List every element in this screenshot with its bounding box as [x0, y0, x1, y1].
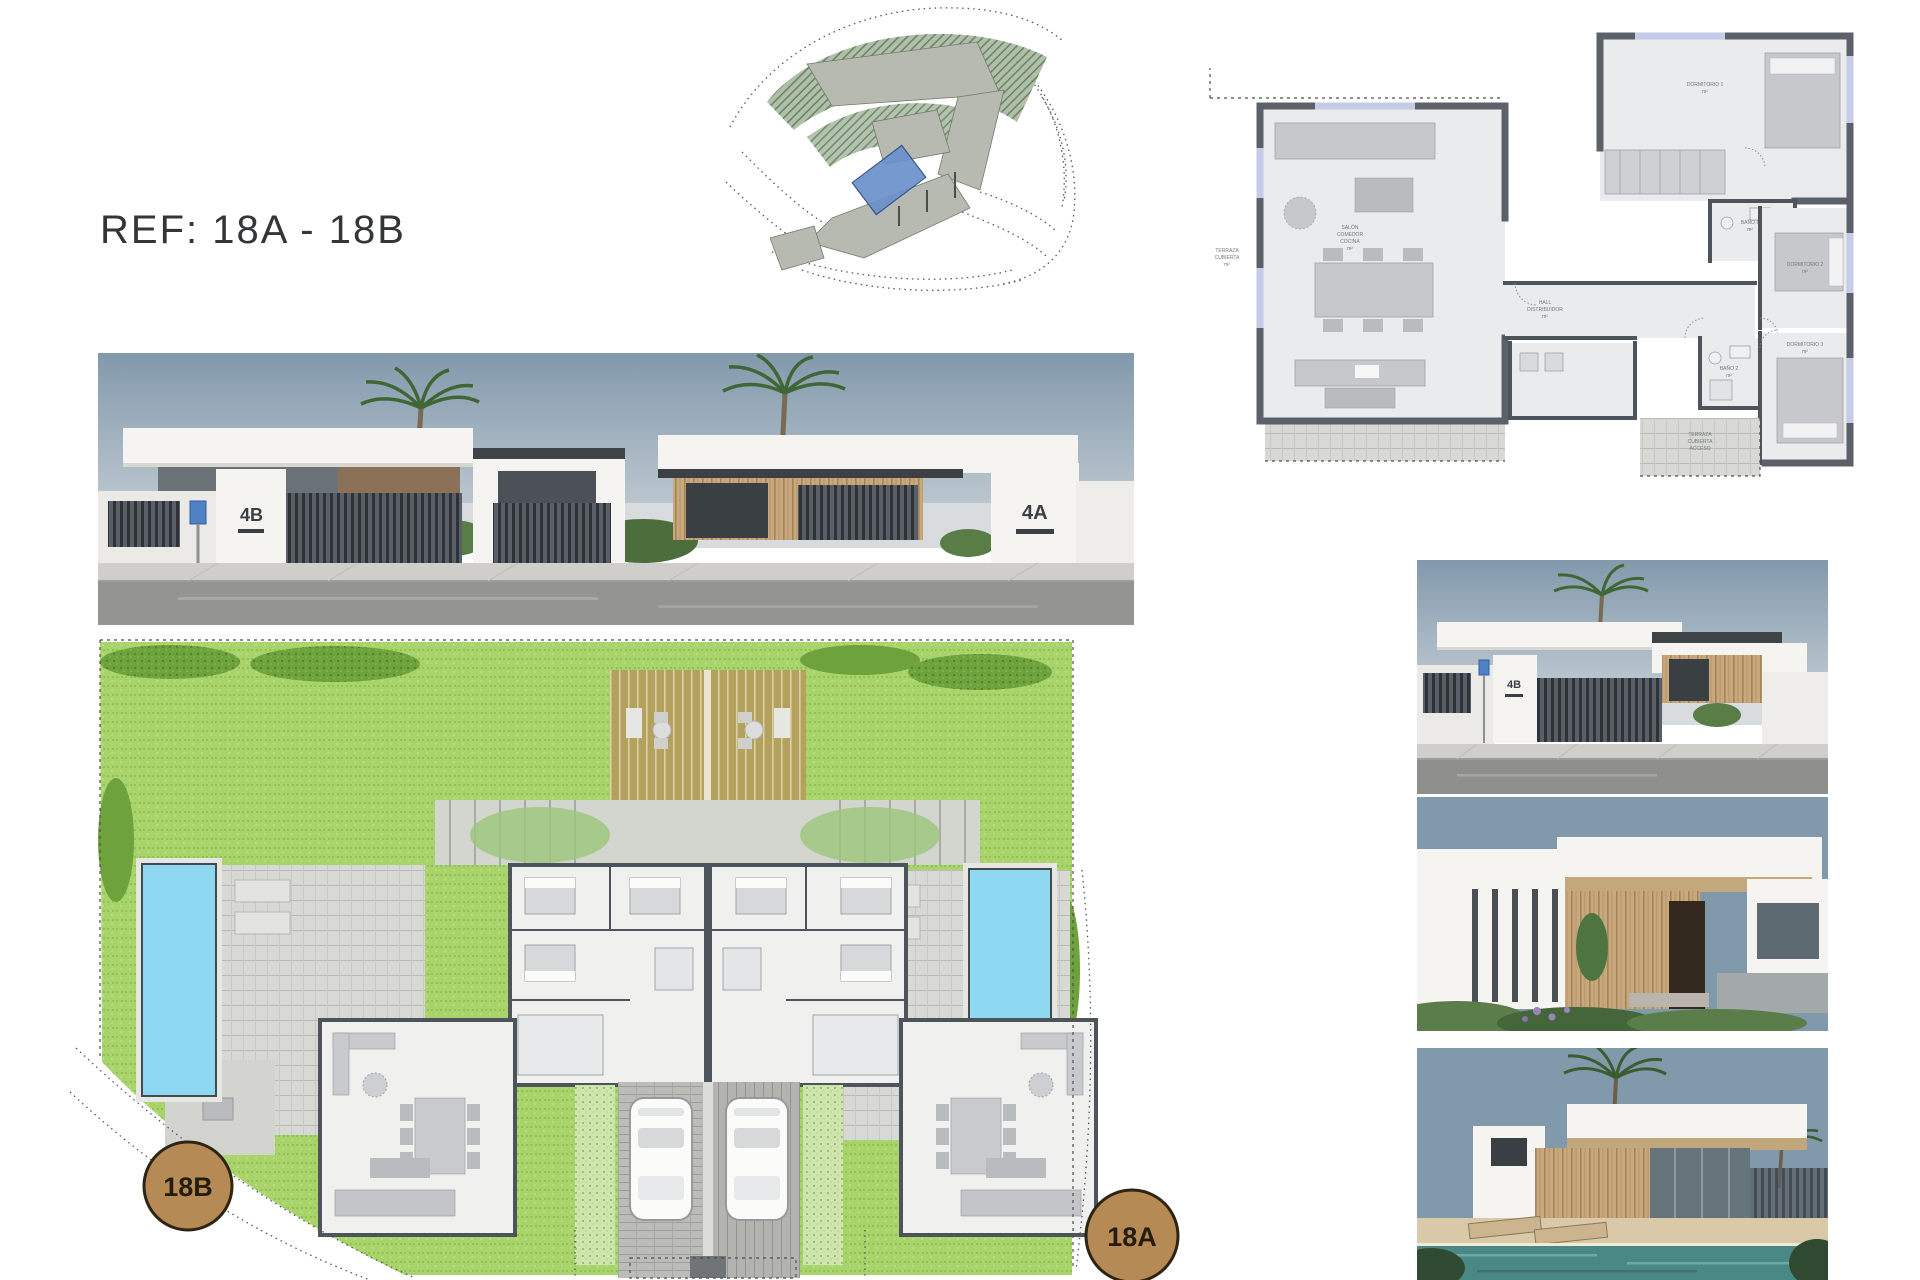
svg-text:m²: m² [1542, 314, 1548, 320]
render-street-view: 4B [1417, 560, 1828, 794]
wardrobe [1605, 150, 1725, 194]
svg-text:DORMITORIO 1: DORMITORIO 1 [1687, 82, 1724, 88]
plot-badge-18b: 18B [144, 1142, 232, 1230]
car-right [726, 1098, 788, 1220]
house-centre [473, 448, 625, 563]
svg-text:m²: m² [1802, 349, 1808, 355]
floorplan-utility [1510, 343, 1635, 418]
street-sign [190, 501, 206, 524]
svg-text:DORMITORIO 3: DORMITORIO 3 [1787, 342, 1824, 348]
planted-band [435, 800, 980, 865]
svg-text:TERRAZA: TERRAZA [1688, 432, 1712, 438]
brochure-page: REF: 18A - 18B [0, 0, 1920, 1280]
svg-text:DISTRIBUIDOR: DISTRIBUIDOR [1527, 307, 1563, 313]
svg-text:SALÓN: SALÓN [1342, 224, 1359, 231]
svg-text:TERRAZA: TERRAZA [1215, 248, 1239, 254]
render-pool-view [1417, 1048, 1828, 1280]
svg-text:CUBIERTA: CUBIERTA [1215, 255, 1240, 261]
svg-text:CUBIERTA: CUBIERTA [1688, 439, 1713, 445]
street-sign [1479, 660, 1489, 675]
pool-left [136, 858, 222, 1102]
house-4b: 4B [98, 428, 473, 565]
floorplan-living-room [1260, 106, 1505, 461]
svg-text:18B: 18B [163, 1172, 213, 1202]
svg-text:BAÑO 1: BAÑO 1 [1741, 219, 1760, 226]
driveway [618, 1082, 800, 1278]
pool-deck [1417, 1216, 1828, 1280]
house-number-right: 4A [1022, 502, 1048, 524]
site-location-map [712, 2, 1130, 302]
house-number: 4B [1507, 679, 1521, 691]
svg-text:m²: m² [1347, 246, 1353, 252]
svg-text:DORMITORIO 2: DORMITORIO 2 [1787, 262, 1824, 268]
wood-deck [610, 670, 806, 800]
floorplan-bedroom1 [1600, 36, 1850, 201]
villa-entrance [1417, 837, 1828, 1013]
svg-text:m²: m² [1726, 373, 1732, 379]
plot-badge-18a: 18A [1086, 1190, 1178, 1280]
svg-text:m²: m² [1747, 227, 1753, 233]
street-render: 4B 4A [98, 353, 1134, 625]
svg-text:18A: 18A [1107, 1222, 1157, 1252]
render-entrance-view [1417, 797, 1828, 1031]
street [1417, 744, 1828, 794]
svg-text:m²: m² [1802, 269, 1808, 275]
house-number-left: 4B [240, 505, 263, 525]
page-title: REF: 18A - 18B [100, 208, 406, 253]
svg-text:BAÑO 2: BAÑO 2 [1720, 365, 1739, 372]
svg-text:m²: m² [1702, 89, 1708, 95]
svg-text:COCINA: COCINA [1340, 239, 1360, 245]
villa: 4B [1417, 622, 1828, 745]
svg-text:ACCESO: ACCESO [1689, 446, 1710, 452]
site-plan: 18B 18A [70, 630, 1190, 1280]
street [98, 563, 1134, 625]
car-left [630, 1098, 692, 1220]
svg-text:m²: m² [1224, 262, 1230, 268]
entrance-door [1669, 901, 1705, 1009]
svg-text:HALL: HALL [1539, 300, 1552, 306]
svg-text:COMEDOR: COMEDOR [1337, 232, 1364, 238]
floor-plan: TERRAZA CUBIERTA m² SALÓN COMEDOR COCINA… [1205, 28, 1860, 503]
